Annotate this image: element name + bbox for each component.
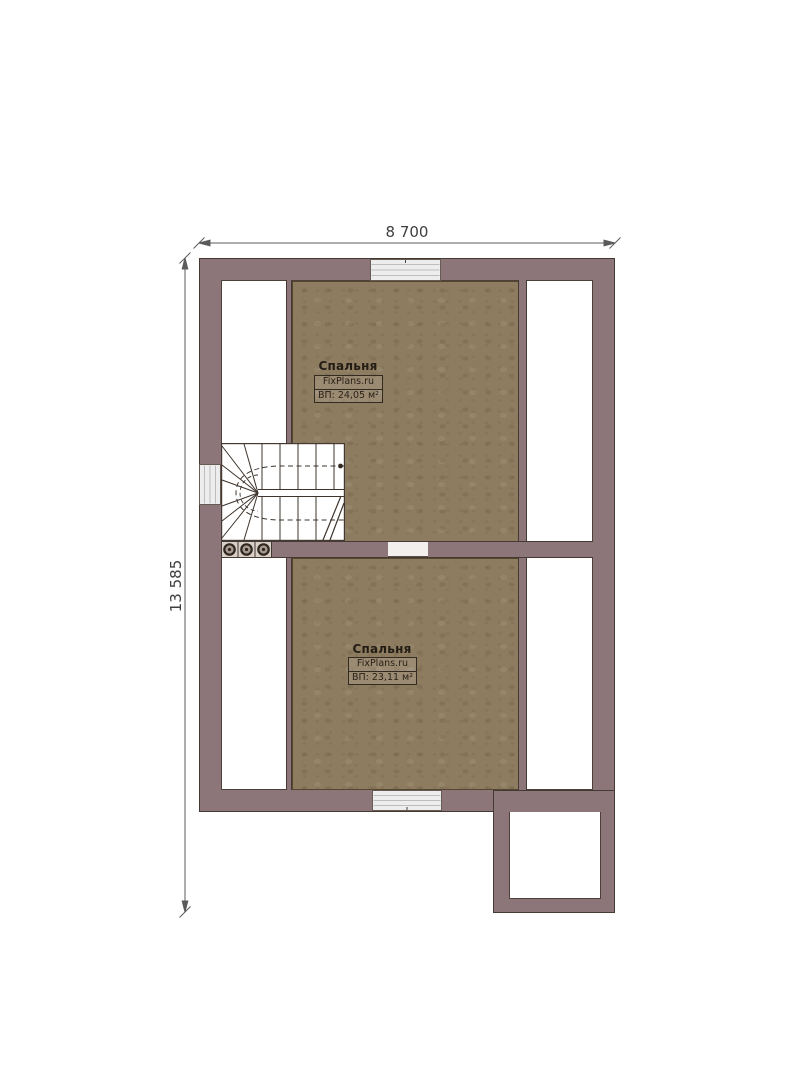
partition-middle-wall [272, 541, 593, 558]
partition-left-lower [286, 558, 292, 790]
room-1-name: Спальня [303, 359, 393, 373]
room-1-area: ВП: 24,05 м² [315, 389, 382, 403]
floor-plan: 8 700 13 585 Спальня FixPlans.ru ВП: 24,… [0, 0, 792, 1080]
dimension-width-label: 8 700 [199, 223, 615, 241]
partition-right-upper [518, 280, 527, 541]
stair-posts-icon [221, 541, 272, 558]
door-opening [388, 542, 428, 557]
room-2-info-box: FixPlans.ru ВП: 23,11 м² [348, 657, 417, 685]
staircase-icon [221, 443, 345, 541]
room-1-info-box: FixPlans.ru ВП: 24,05 м² [314, 375, 383, 403]
annex-interior [509, 812, 601, 899]
room-2-area: ВП: 23,11 м² [349, 671, 416, 685]
room-2-name: Спальня [337, 642, 427, 656]
room-2-watermark: FixPlans.ru [349, 658, 416, 671]
room-1-watermark: FixPlans.ru [315, 376, 382, 389]
window-left-icon [199, 464, 221, 505]
window-bottom-icon [372, 790, 442, 811]
window-top-icon [370, 259, 441, 281]
dimension-height-label: 13 585 [167, 541, 185, 631]
partition-left-upper [286, 280, 292, 443]
partition-right-lower [518, 558, 527, 790]
